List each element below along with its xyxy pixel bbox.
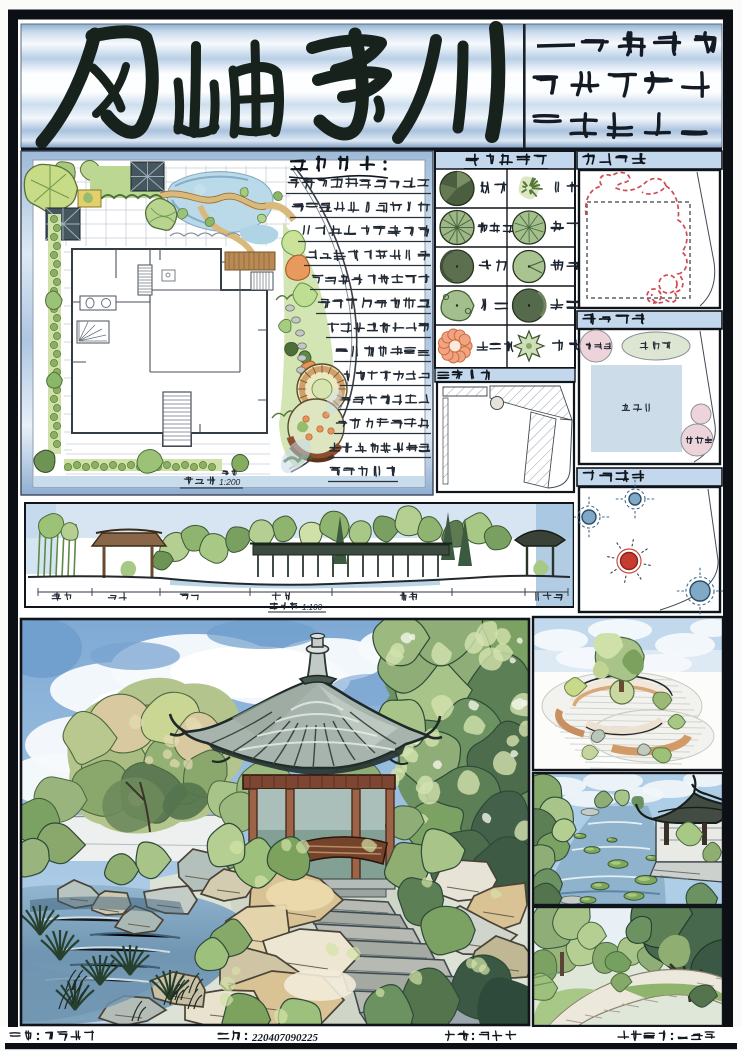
svg-text:220407090225: 220407090225 (251, 1032, 319, 1044)
svg-text:1:200: 1:200 (219, 477, 241, 487)
svg-text:1:100: 1:100 (302, 603, 323, 612)
